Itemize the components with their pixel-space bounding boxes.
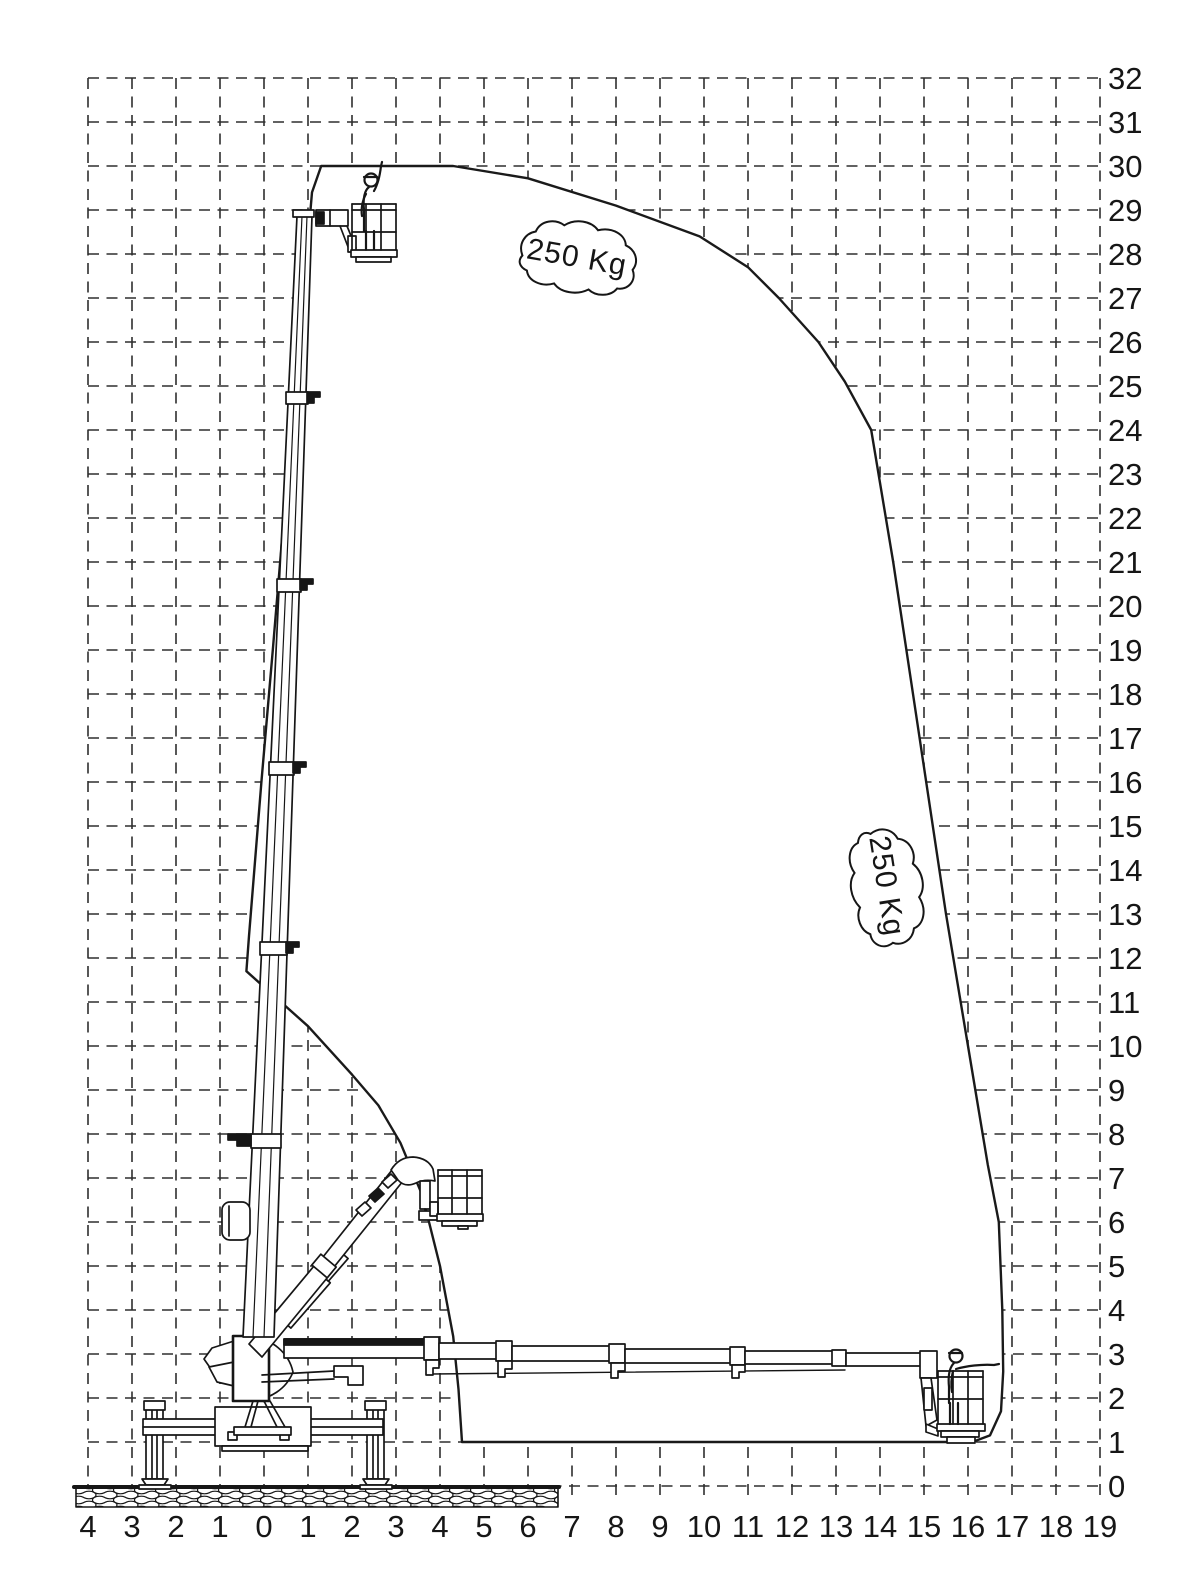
y-tick-label: 19 xyxy=(1108,633,1142,668)
y-tick-label: 7 xyxy=(1108,1161,1125,1196)
y-tick-label: 31 xyxy=(1108,105,1142,140)
y-tick-label: 0 xyxy=(1108,1469,1125,1504)
y-tick-label: 1 xyxy=(1108,1425,1125,1460)
y-tick-label: 2 xyxy=(1108,1381,1125,1416)
x-tick-label: 6 xyxy=(519,1509,536,1544)
y-tick-label: 3 xyxy=(1108,1337,1125,1372)
x-tick-label: 3 xyxy=(387,1509,404,1544)
x-tick-label: 19 xyxy=(1083,1509,1117,1544)
y-tick-label: 24 xyxy=(1108,413,1142,448)
x-tick-label: 15 xyxy=(907,1509,941,1544)
y-tick-label: 22 xyxy=(1108,501,1142,536)
y-tick-label: 4 xyxy=(1108,1293,1125,1328)
x-tick-label: 10 xyxy=(687,1509,721,1544)
x-tick-label: 9 xyxy=(651,1509,668,1544)
y-tick-label: 30 xyxy=(1108,149,1142,184)
y-tick-label: 27 xyxy=(1108,281,1142,316)
x-tick-label: 12 xyxy=(775,1509,809,1544)
x-tick-label: 17 xyxy=(995,1509,1029,1544)
y-tick-label: 15 xyxy=(1108,809,1142,844)
y-tick-label: 14 xyxy=(1108,853,1142,888)
x-tick-label: 0 xyxy=(255,1509,272,1544)
x-tick-label: 18 xyxy=(1039,1509,1073,1544)
work-envelope-outline xyxy=(246,166,1003,1442)
y-tick-label: 26 xyxy=(1108,325,1142,360)
x-tick-label: 11 xyxy=(732,1509,764,1544)
x-tick-label: 5 xyxy=(475,1509,492,1544)
x-tick-label: 7 xyxy=(563,1509,580,1544)
x-tick-label: 3 xyxy=(123,1509,140,1544)
ground-hatch xyxy=(74,1487,559,1507)
y-tick-label: 9 xyxy=(1108,1073,1125,1108)
x-axis-tick-labels: 4321012345678910111213141516171819 xyxy=(79,1509,1117,1544)
working-envelope-svg: 250 Kg 250 Kg 43210123456789101112131415… xyxy=(0,0,1200,1583)
y-tick-label: 17 xyxy=(1108,721,1142,756)
x-tick-label: 2 xyxy=(167,1509,184,1544)
y-tick-label: 20 xyxy=(1108,589,1142,624)
diagram-canvas: 250 Kg 250 Kg 43210123456789101112131415… xyxy=(0,0,1200,1583)
y-tick-label: 5 xyxy=(1108,1249,1125,1284)
x-tick-label: 14 xyxy=(863,1509,897,1544)
y-tick-label: 32 xyxy=(1108,61,1142,96)
x-tick-label: 4 xyxy=(431,1509,448,1544)
y-tick-label: 18 xyxy=(1108,677,1142,712)
y-tick-label: 13 xyxy=(1108,897,1142,932)
y-tick-label: 29 xyxy=(1108,193,1142,228)
x-tick-label: 1 xyxy=(299,1509,316,1544)
x-tick-label: 2 xyxy=(343,1509,360,1544)
y-tick-label: 12 xyxy=(1108,941,1142,976)
y-tick-label: 25 xyxy=(1108,369,1142,404)
chassis-outriggers xyxy=(139,1401,392,1489)
y-tick-label: 16 xyxy=(1108,765,1142,800)
x-tick-label: 1 xyxy=(211,1509,228,1544)
y-tick-label: 6 xyxy=(1108,1205,1125,1240)
y-tick-label: 8 xyxy=(1108,1117,1125,1152)
y-axis-tick-labels: 3231302928272625242322212019181716151413… xyxy=(1108,61,1142,1504)
y-tick-label: 23 xyxy=(1108,457,1142,492)
x-tick-label: 8 xyxy=(607,1509,624,1544)
x-tick-label: 13 xyxy=(819,1509,853,1544)
y-tick-label: 10 xyxy=(1108,1029,1142,1064)
y-tick-label: 28 xyxy=(1108,237,1142,272)
x-tick-label: 16 xyxy=(951,1509,985,1544)
x-tick-label: 4 xyxy=(79,1509,96,1544)
y-tick-label: 21 xyxy=(1108,545,1142,580)
y-tick-label: 11 xyxy=(1108,985,1140,1020)
